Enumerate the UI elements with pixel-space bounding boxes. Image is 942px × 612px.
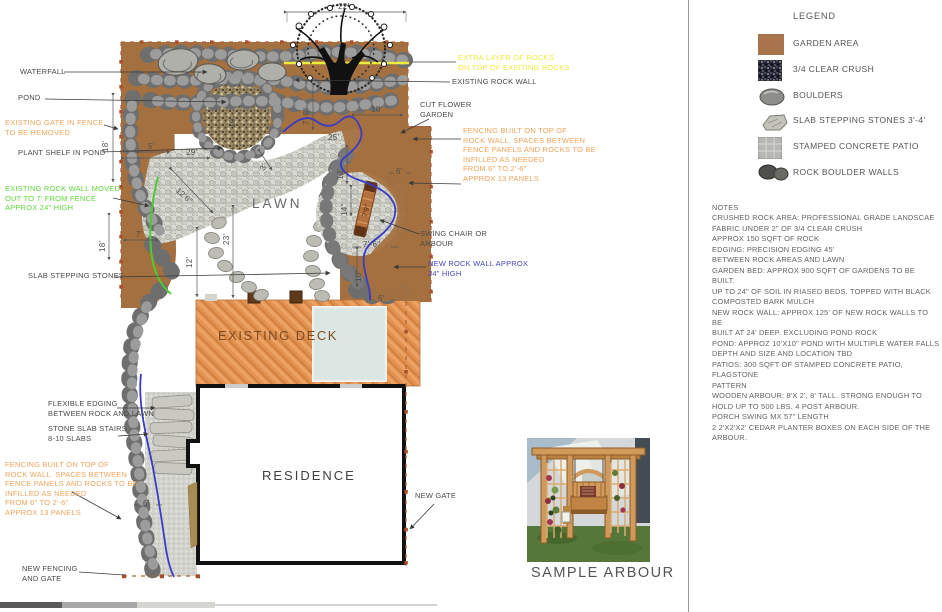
callout-existing-gate: EXISTING GATE IN FENCE TO BE REMOVED [5, 118, 103, 137]
sample-arbour-photo [527, 438, 650, 562]
dim-22ft: 22' [338, 2, 349, 11]
dim-10ft-pond: 10' [228, 117, 237, 128]
dim-18ft-a: 18' [101, 141, 110, 152]
slab-stone-icon [758, 111, 790, 138]
callout-rock-wall-moved: EXISTING ROCK WALL MOVED OUT TO 7' FROM … [5, 184, 120, 213]
lawn-label: LAWN [252, 196, 303, 211]
dim-18ft-b: 18' [98, 241, 107, 252]
dim-14in: 14" [340, 203, 349, 216]
residence-label: RESIDENCE [262, 468, 356, 483]
dim-23ft: 23' [222, 234, 231, 245]
notes-block: NOTES CRUSHED ROCK AREA: PROFESSIONAL GR… [712, 203, 940, 443]
dim-7ft: 7' [136, 230, 143, 239]
stamped-concrete-swatch [758, 137, 782, 164]
callout-extra-layer: EXTRA LAYER OF ROCKS ON TOP OF EXISTING … [458, 53, 570, 72]
planter-box [290, 291, 302, 303]
callout-fencing-right: FENCING BUILT ON TOP OF ROCK WALL. SPACE… [463, 126, 596, 184]
dim-7ft6-b: 7'-6" [363, 240, 380, 249]
callout-new-fencing: NEW FENCING AND GATE [22, 564, 78, 583]
boulder-icon [758, 86, 788, 111]
dim-7ft6-a: 7'-6" [302, 108, 311, 125]
callout-swing-chair: SWING CHAIR OR ARBOUR [420, 229, 487, 248]
dim-5ft: 5' [148, 142, 155, 151]
dim-10ft-garden: 10' [371, 105, 382, 114]
sample-arbour-caption: SAMPLE ARBOUR [531, 565, 675, 581]
callout-existing-rock-wall: EXISTING ROCK WALL [452, 77, 537, 87]
landscape-plan-page: WATERFALL POND EXISTING GATE IN FENCE TO… [0, 0, 942, 612]
callout-plant-shelf: PLANT SHELF IN POND [18, 148, 105, 158]
panel-divider [688, 0, 689, 612]
dim-25ft: 25' [328, 133, 339, 142]
callout-fencing-left: FENCING BUILT ON TOP OF ROCK WALL. SPACE… [5, 460, 138, 518]
dim-29ft: 29' [186, 148, 197, 157]
legend-title: LEGEND [793, 11, 836, 21]
callout-new-rock-wall: NEW ROCK WALL APPROX 24" HIGH [428, 259, 528, 278]
dim-6ft-a: 6' [396, 167, 403, 176]
rock-wall-icon [758, 163, 790, 186]
callout-waterfall: WATERFALL [20, 67, 66, 77]
callout-stone-slab-stairs: STONE SLAB STAIRS 8-10 SLABS [48, 424, 127, 443]
deck-label: EXISTING DECK [218, 328, 338, 343]
dim-13ft: 13' [336, 169, 345, 180]
callout-slab-stepping-stones: SLAB STEPPING STONES [28, 271, 124, 281]
scale-bar [0, 602, 437, 608]
callout-new-gate: NEW GATE [415, 491, 456, 501]
callout-pond: POND [18, 93, 40, 103]
clear-crush-swatch [758, 60, 782, 86]
dim-12ft: 12' [185, 257, 194, 268]
dim-10ft-b: 10' [354, 271, 363, 282]
callout-cut-flower-garden: CUT FLOWER GARDEN [420, 100, 471, 119]
callout-flexible-edging: FLEXIBLE EDGING BETWEEN ROCK AND LAWN [48, 399, 154, 418]
dim-6ft-c: 6' [143, 499, 150, 508]
garden-area-swatch [758, 34, 784, 60]
hot-tub [313, 307, 386, 381]
dim-6ft-b: 6' [378, 294, 385, 303]
crushed-rock-circle [203, 82, 271, 150]
